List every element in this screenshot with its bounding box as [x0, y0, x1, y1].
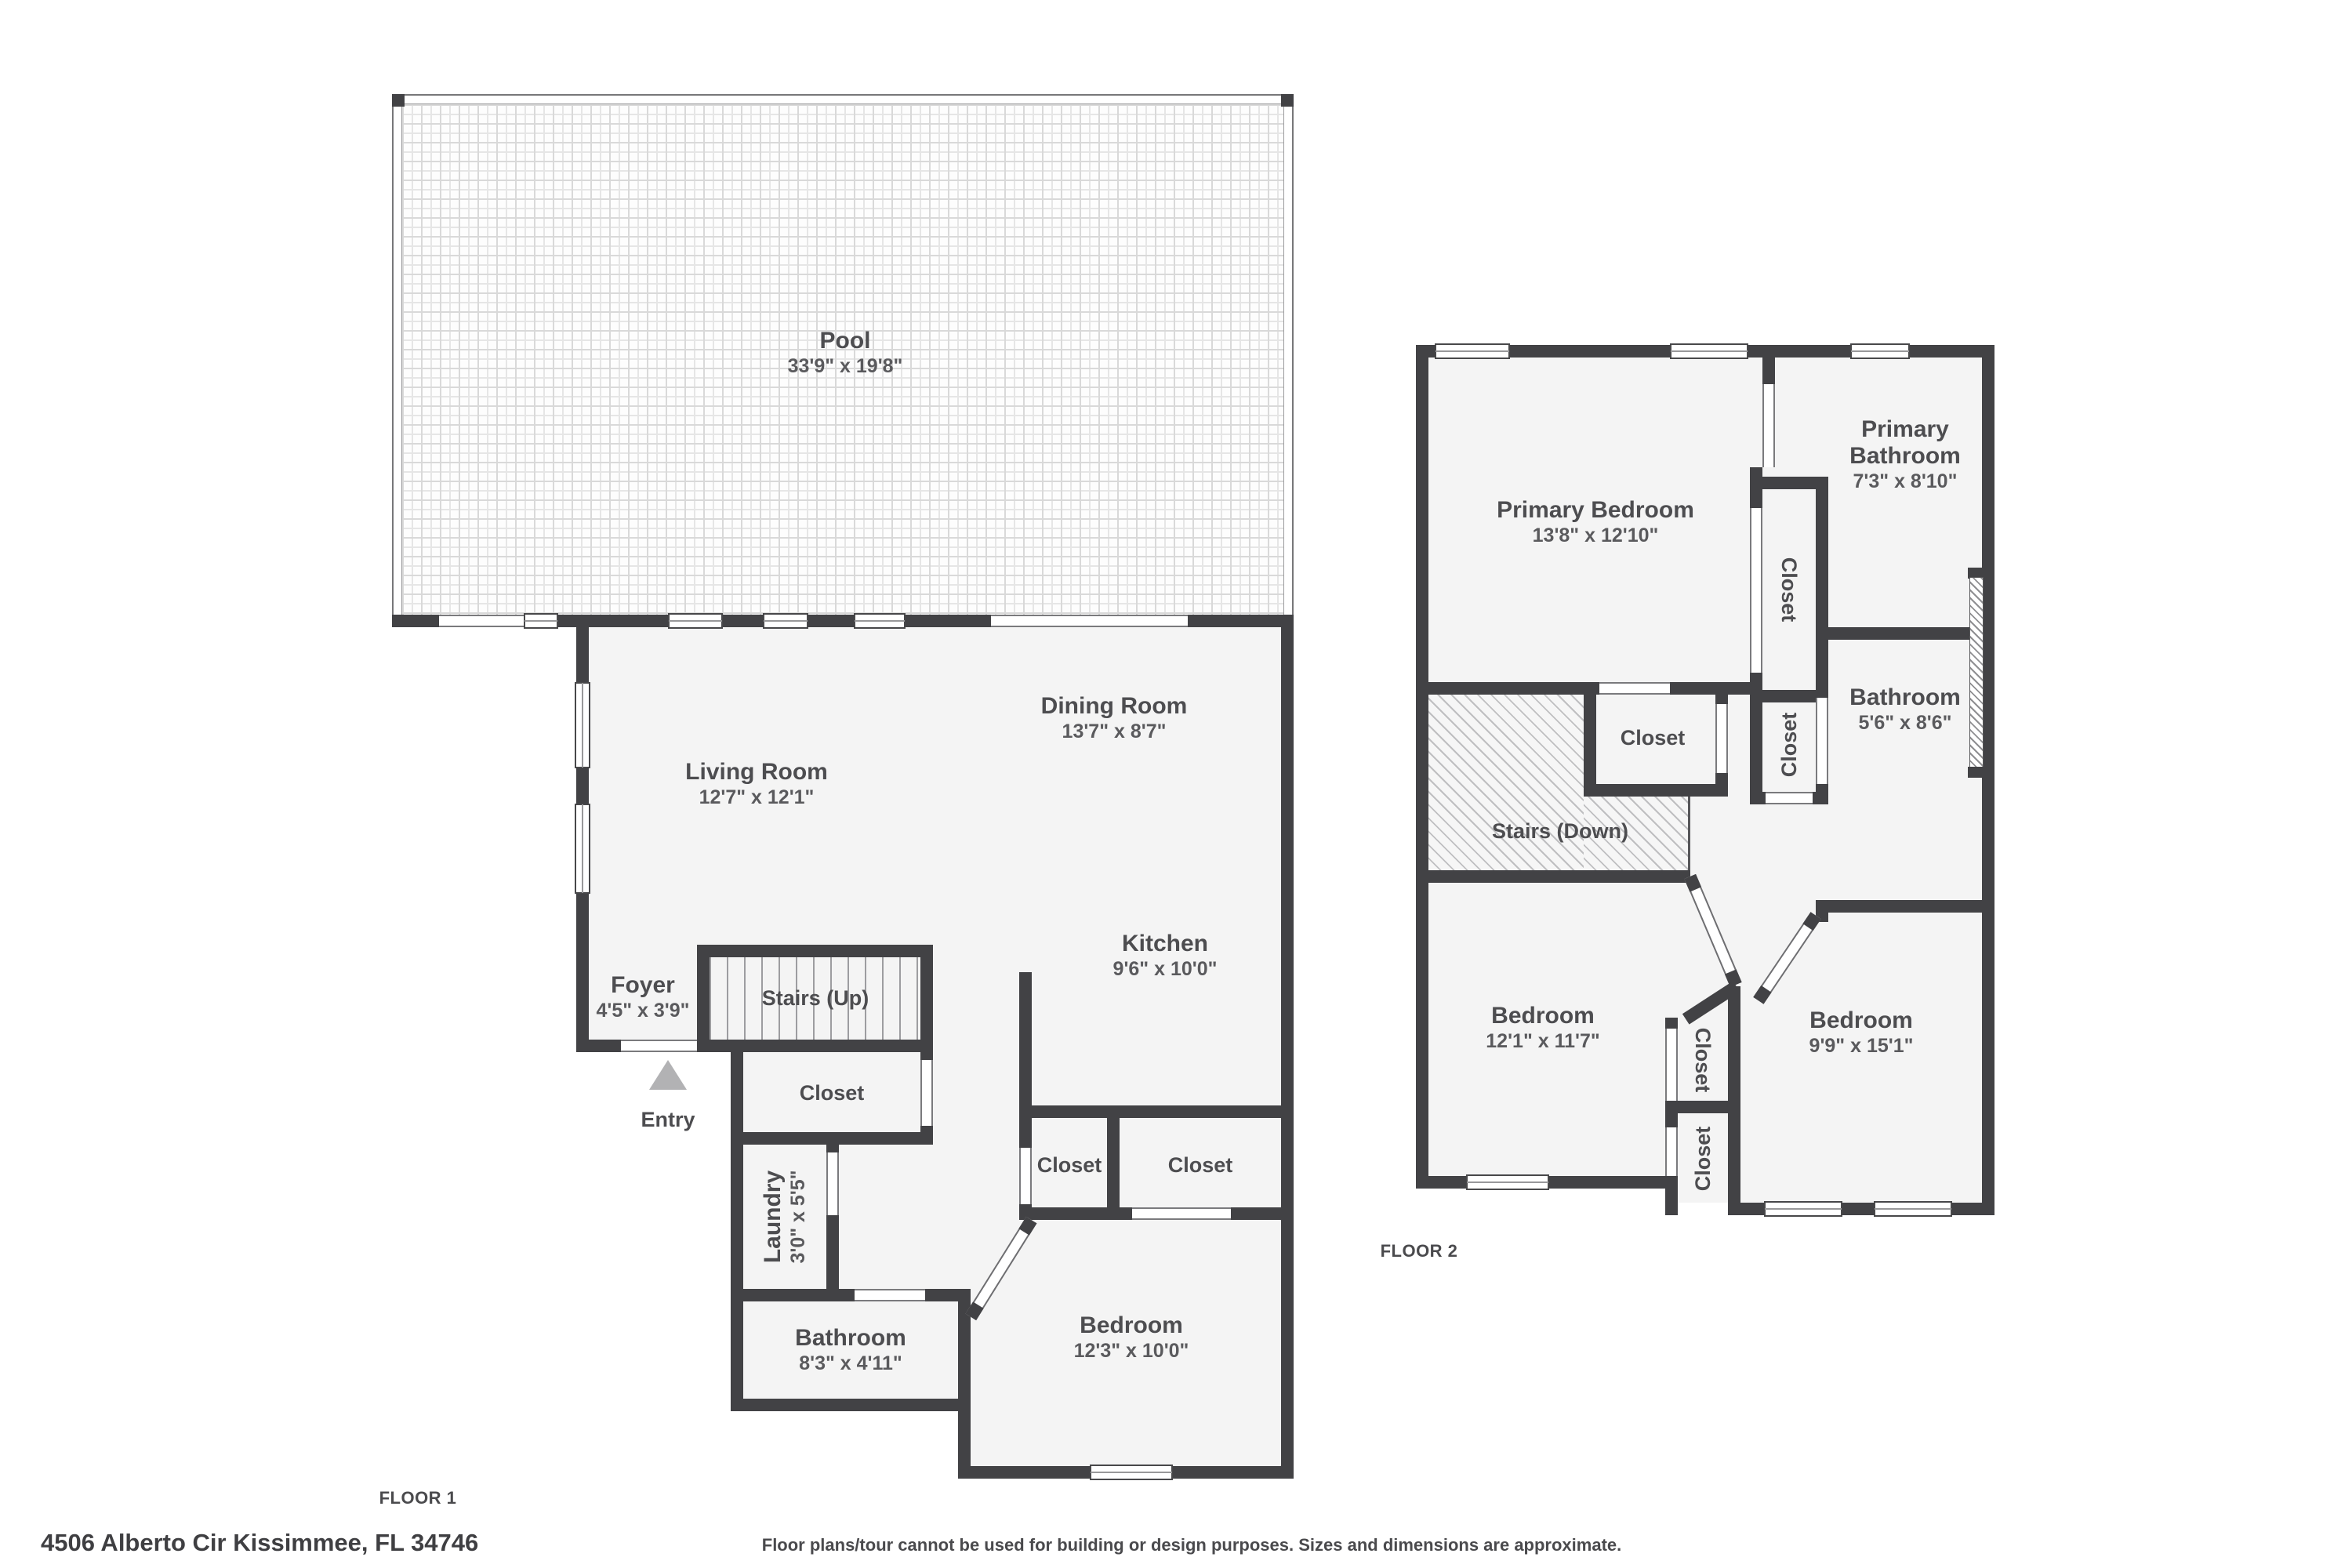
- entry-arrow-icon: [649, 1060, 687, 1090]
- wall: [1416, 1176, 1466, 1189]
- room-dims: 3'0" x 5'5": [786, 1170, 810, 1263]
- wall: [1728, 1203, 1764, 1215]
- room-kitchen-lower: [933, 1040, 1032, 1145]
- room-name: Bedroom: [1809, 1007, 1914, 1034]
- room-label-bathroom: Bathroom 8'3" x 4'11": [795, 1325, 906, 1375]
- window: [1466, 1174, 1549, 1190]
- wall: [697, 957, 710, 1052]
- wall: [1762, 358, 1775, 384]
- floor2-tag: FLOOR 2: [1381, 1241, 1458, 1261]
- room-label-dining-room: Dining Room 13'7" x 8'7": [1041, 693, 1188, 743]
- pool-corner: [1281, 94, 1294, 107]
- wall: [1416, 870, 1690, 883]
- room-label-closet: Closet: [800, 1080, 865, 1106]
- room-dims: 9'6" x 10'0": [1113, 957, 1218, 981]
- window: [1435, 343, 1510, 359]
- room-name: Closet: [1037, 1152, 1102, 1178]
- entry-label: Entry: [641, 1106, 695, 1133]
- room-label-primary-bathroom: Primary Bathroom 7'3" x 8'10": [1807, 416, 2003, 493]
- wall: [1750, 690, 1762, 804]
- wall: [1828, 900, 1982, 913]
- room-name: Primary Bedroom: [1497, 497, 1694, 524]
- room-name: Dining Room: [1041, 693, 1188, 720]
- window: [1874, 1201, 1952, 1217]
- door: [1132, 1207, 1231, 1220]
- window: [1670, 343, 1748, 359]
- room-label-laundry: Laundry 3'0" x 5'5": [760, 1170, 810, 1263]
- room-dims: 7'3" x 8'10": [1807, 470, 2003, 493]
- niche-cap: [1968, 767, 1984, 778]
- room-dims: 5'6" x 8'6": [1849, 711, 1961, 735]
- door: [1715, 704, 1728, 773]
- window: [1090, 1465, 1173, 1480]
- wall: [1019, 1105, 1294, 1118]
- disclaimer-text: Floor plans/tour cannot be used for buil…: [762, 1535, 1622, 1555]
- room-name: Laundry: [760, 1170, 786, 1263]
- wall: [1842, 1203, 1874, 1215]
- room-label-closet: Closet: [1621, 724, 1686, 751]
- wall: [1107, 1105, 1120, 1220]
- room-name: Kitchen: [1113, 931, 1218, 957]
- room-name: Bedroom: [1486, 1003, 1599, 1029]
- room-name: Primary Bathroom: [1807, 416, 2003, 470]
- room-label-primary-bedroom: Primary Bedroom 13'8" x 12'10": [1497, 497, 1694, 547]
- wall: [731, 1052, 743, 1411]
- room-name: Closet: [1690, 1127, 1716, 1192]
- door: [920, 1060, 933, 1126]
- door: [1816, 698, 1828, 784]
- room-name: Closet: [1776, 713, 1802, 778]
- room-name: Stairs (Up): [762, 985, 869, 1011]
- room-name: Bathroom: [1849, 684, 1961, 711]
- room-name: Entry: [641, 1106, 695, 1133]
- room-label-stairs-down: Stairs (Down): [1492, 818, 1628, 844]
- room-dims: 8'3" x 4'11": [795, 1352, 906, 1375]
- room-name: Bedroom: [1074, 1312, 1189, 1339]
- wall: [1281, 615, 1294, 1479]
- floor-plan-document: Pool 33'9" x 19'8" Living Room 12'7" x 1…: [0, 0, 2352, 1568]
- room-dims: 12'7" x 12'1": [685, 786, 828, 809]
- window: [1764, 1201, 1842, 1217]
- wall: [958, 1317, 971, 1479]
- room-dims: 13'8" x 12'10": [1497, 524, 1694, 547]
- wall: [1828, 627, 1982, 640]
- opening: [439, 615, 524, 627]
- wall: [731, 1399, 971, 1411]
- wall: [731, 1289, 971, 1301]
- wall: [1549, 1176, 1678, 1189]
- room-name: Stairs (Down): [1492, 818, 1628, 844]
- window: [854, 613, 906, 629]
- room-name: Pool: [788, 328, 903, 354]
- room-name: Closet: [1690, 1028, 1716, 1093]
- room-label-closet: Closet: [1037, 1152, 1102, 1178]
- room-name: Living Room: [685, 759, 828, 786]
- door: [1019, 1148, 1032, 1204]
- hatched-niche: [1969, 577, 1984, 768]
- room-label-stairs-up: Stairs (Up): [762, 985, 869, 1011]
- room-label-bedroom: Bedroom 12'3" x 10'0": [1074, 1312, 1189, 1363]
- room-label-closet: Closet: [1690, 1127, 1716, 1192]
- room-name: Foyer: [596, 972, 689, 999]
- room-name: Closet: [1621, 724, 1686, 751]
- door: [855, 1289, 925, 1301]
- door: [1766, 792, 1813, 804]
- room-dims: 9'9" x 15'1": [1809, 1034, 1914, 1058]
- room-label-bedroom-left: Bedroom 12'1" x 11'7": [1486, 1003, 1599, 1053]
- window: [668, 613, 723, 629]
- wall: [1665, 1176, 1678, 1215]
- wall: [1584, 682, 1596, 797]
- room-label-foyer: Foyer 4'5" x 3'9": [596, 972, 689, 1022]
- wall: [1665, 1101, 1740, 1113]
- room-dims: 13'7" x 8'7": [1041, 720, 1188, 743]
- wall: [731, 1132, 933, 1145]
- pool-corner: [392, 94, 405, 107]
- room-name: Closet: [1168, 1152, 1233, 1178]
- room-label-pool: Pool 33'9" x 19'8": [788, 328, 903, 378]
- window: [524, 613, 558, 629]
- room-label-closet: Closet: [1690, 1028, 1716, 1093]
- room-bedroom-right: [1740, 913, 1982, 1203]
- wall: [1416, 682, 1599, 695]
- door: [1599, 682, 1670, 695]
- floor1-tag: FLOOR 1: [379, 1488, 457, 1508]
- room-label-bathroom: Bathroom 5'6" x 8'6": [1849, 684, 1961, 735]
- address-text: 4506 Alberto Cir Kissimmee, FL 34746: [41, 1529, 478, 1557]
- room-name: Bathroom: [795, 1325, 906, 1352]
- window: [763, 613, 808, 629]
- window: [1850, 343, 1910, 359]
- wall: [1584, 784, 1728, 797]
- wall: [697, 945, 933, 957]
- wall: [697, 1040, 933, 1052]
- room-dims: 4'5" x 3'9": [596, 999, 689, 1022]
- wall: [1416, 345, 1428, 1189]
- opening: [991, 615, 1188, 627]
- room-name: Closet: [1776, 557, 1802, 622]
- room-dims: 33'9" x 19'8": [788, 354, 903, 378]
- room-label-bedroom-right: Bedroom 9'9" x 15'1": [1809, 1007, 1914, 1058]
- room-label-closet: Closet: [1776, 557, 1802, 622]
- door: [1762, 384, 1775, 467]
- room-label-living-room: Living Room 12'7" x 12'1": [685, 759, 828, 809]
- window: [575, 682, 590, 768]
- closet-door: [1665, 1029, 1678, 1102]
- room-name: Closet: [800, 1080, 865, 1106]
- room-label-kitchen: Kitchen 9'6" x 10'0": [1113, 931, 1218, 981]
- room-label-closet: Closet: [1776, 713, 1802, 778]
- closet-door: [1750, 508, 1762, 673]
- room-dims: 12'3" x 10'0": [1074, 1339, 1189, 1363]
- wall: [1952, 1203, 1994, 1215]
- window: [575, 804, 590, 894]
- door: [826, 1152, 839, 1215]
- room-dims: 12'1" x 11'7": [1486, 1029, 1599, 1053]
- room-label-closet: Closet: [1168, 1152, 1233, 1178]
